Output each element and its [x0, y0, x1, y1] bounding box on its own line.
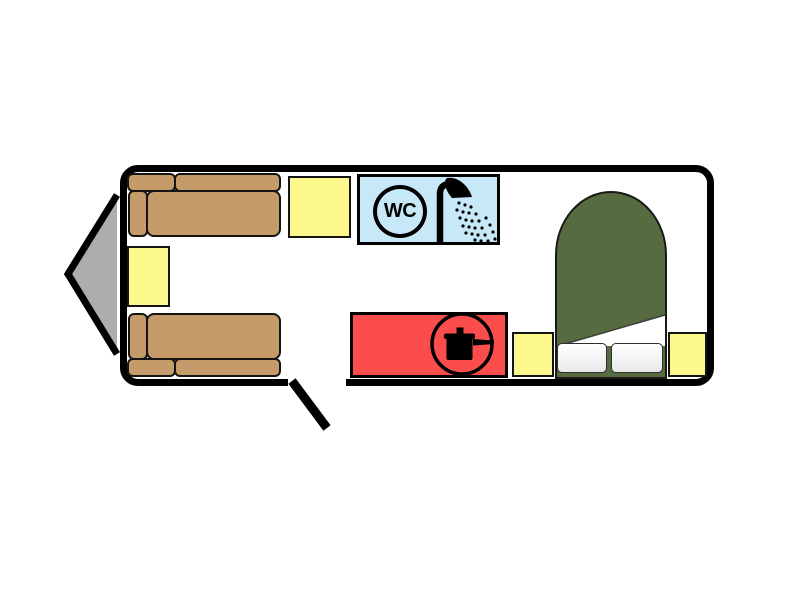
- tow-hitch-triangle: [68, 196, 117, 353]
- sofa-upper-armrest: [128, 190, 148, 237]
- wc-label: WC: [384, 200, 416, 223]
- pillow-right: [611, 343, 663, 373]
- wc-circle-sign: WC: [373, 185, 427, 238]
- floorplan-canvas: WC: [0, 0, 800, 600]
- door-opening: [288, 378, 346, 389]
- tow-hitch-outline: [68, 195, 117, 354]
- sofa-upper-seat: [146, 190, 281, 237]
- sofa-lower-backrest-left: [127, 358, 176, 377]
- kitchen-area: [350, 312, 508, 378]
- wardrobe-cabinet: [288, 176, 351, 238]
- bedside-cabinet-right: [668, 332, 707, 377]
- pillow-left: [557, 343, 607, 373]
- sofa-lower-seat: [146, 313, 281, 360]
- sofa-lower-backrest-right: [174, 358, 281, 377]
- front-cabinet: [127, 246, 170, 307]
- bedside-cabinet-left: [512, 332, 554, 377]
- sofa-lower-armrest: [128, 313, 148, 360]
